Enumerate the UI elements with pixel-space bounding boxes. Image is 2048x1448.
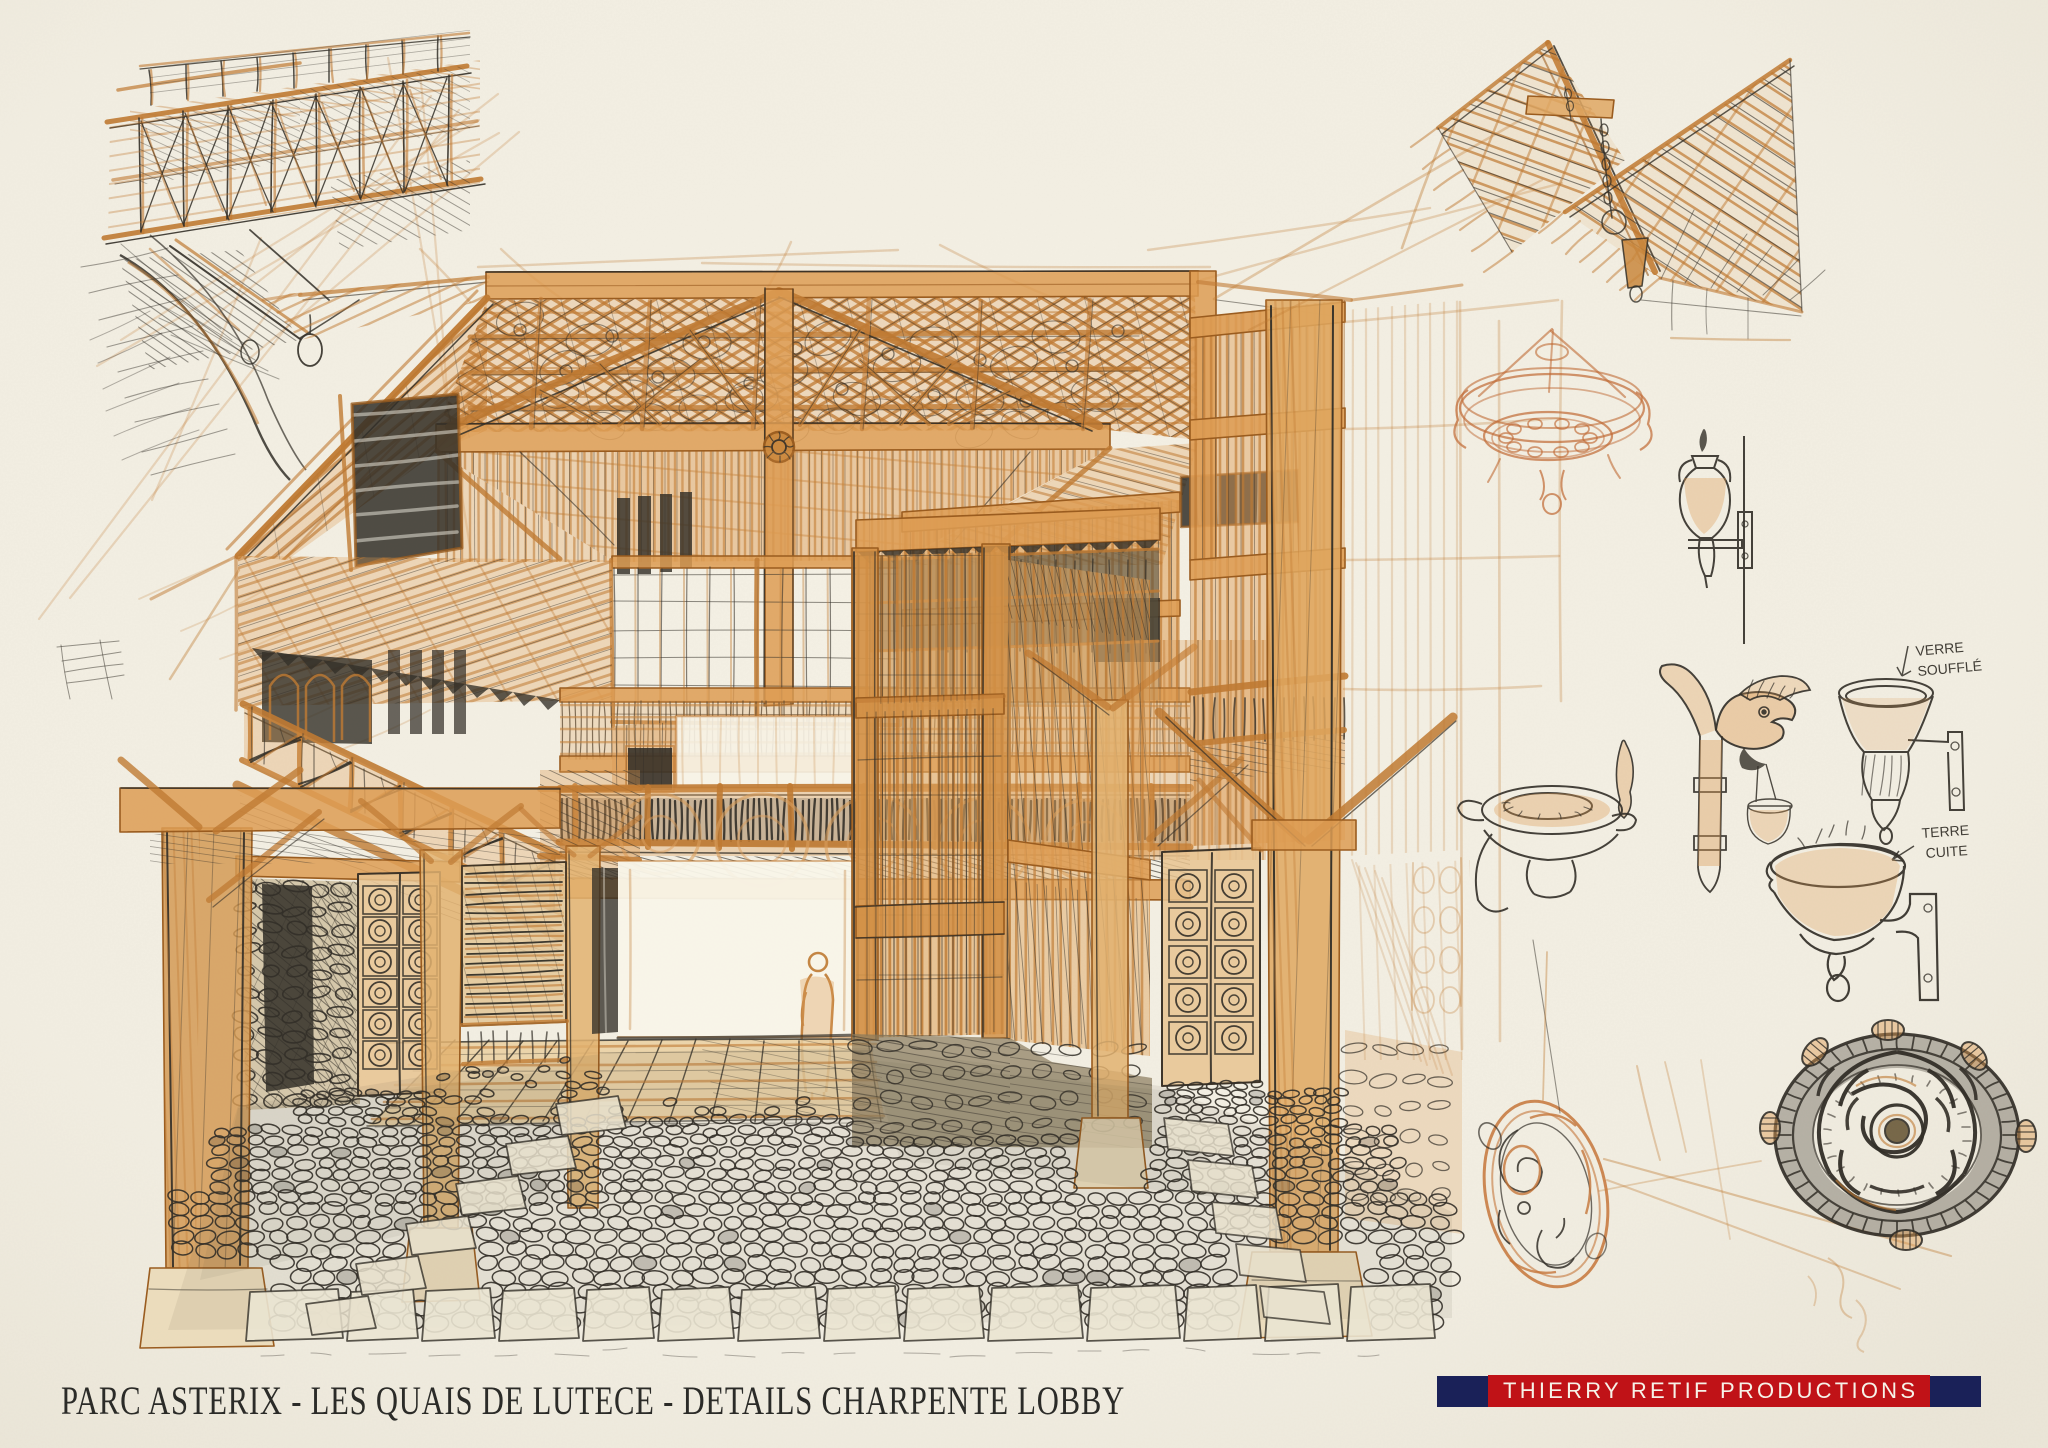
svg-text:CUITE: CUITE (1925, 842, 1968, 861)
svg-text:PARC ASTERIX - LES QUAIS DE LU: PARC ASTERIX - LES QUAIS DE LUTECE - DET… (61, 1378, 1125, 1423)
svg-text:TERRE: TERRE (1921, 822, 1969, 841)
